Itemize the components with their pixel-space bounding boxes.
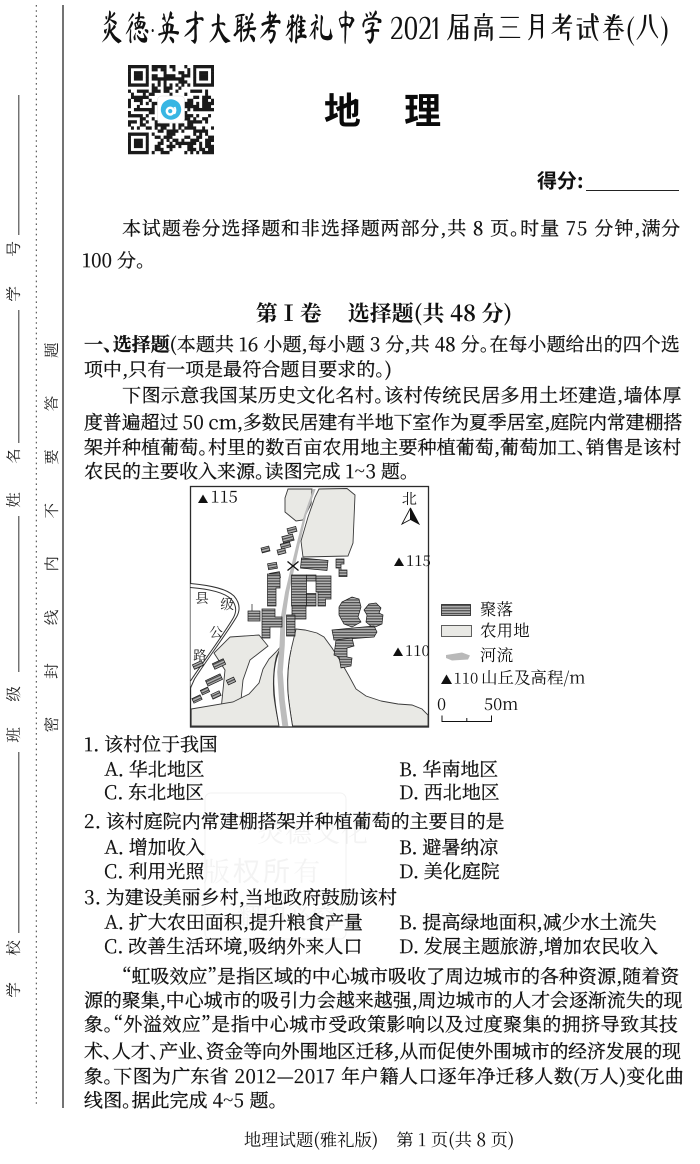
svg-text:班: 班 [2,727,24,743]
svg-text:学: 学 [2,286,24,302]
svg-text:河流: 河流 [480,642,513,666]
svg-text:翻印必究: 翻印必究 [237,897,337,932]
svg-text:姓: 姓 [2,492,24,508]
svg-text:县: 县 [195,587,209,607]
svg-text:内: 内 [40,556,62,572]
svg-text:公: 公 [209,621,223,641]
svg-text:聚落: 聚落 [480,596,513,620]
svg-text:级: 级 [2,686,24,702]
svg-text:号: 号 [2,241,24,257]
svg-text:0: 0 [437,691,446,715]
svg-text:北: 北 [402,488,417,509]
svg-text:学: 学 [2,982,24,998]
svg-text:要: 要 [40,449,62,465]
svg-text:密: 密 [40,717,62,733]
svg-text:山丘及高程/m: 山丘及高程/m [481,665,585,689]
svg-text:封: 封 [40,663,62,679]
svg-text:115: 115 [211,484,238,508]
svg-text:路: 路 [193,644,207,664]
svg-text:题: 题 [40,342,62,358]
svg-text:校: 校 [2,940,24,956]
svg-text:版权所有: 版权所有 [203,850,323,889]
svg-text:答: 答 [40,395,62,411]
svg-text:不: 不 [40,503,62,519]
svg-text:110: 110 [454,668,479,689]
svg-text:炎德文化: 炎德文化 [257,811,369,850]
svg-text:115: 115 [406,550,431,571]
svg-text:110: 110 [405,640,430,661]
svg-text:名: 名 [2,448,24,464]
svg-text:农用地: 农用地 [480,618,530,642]
svg-text:50m: 50m [484,691,518,715]
svg-text:级: 级 [220,593,234,613]
svg-text:线: 线 [40,610,62,626]
